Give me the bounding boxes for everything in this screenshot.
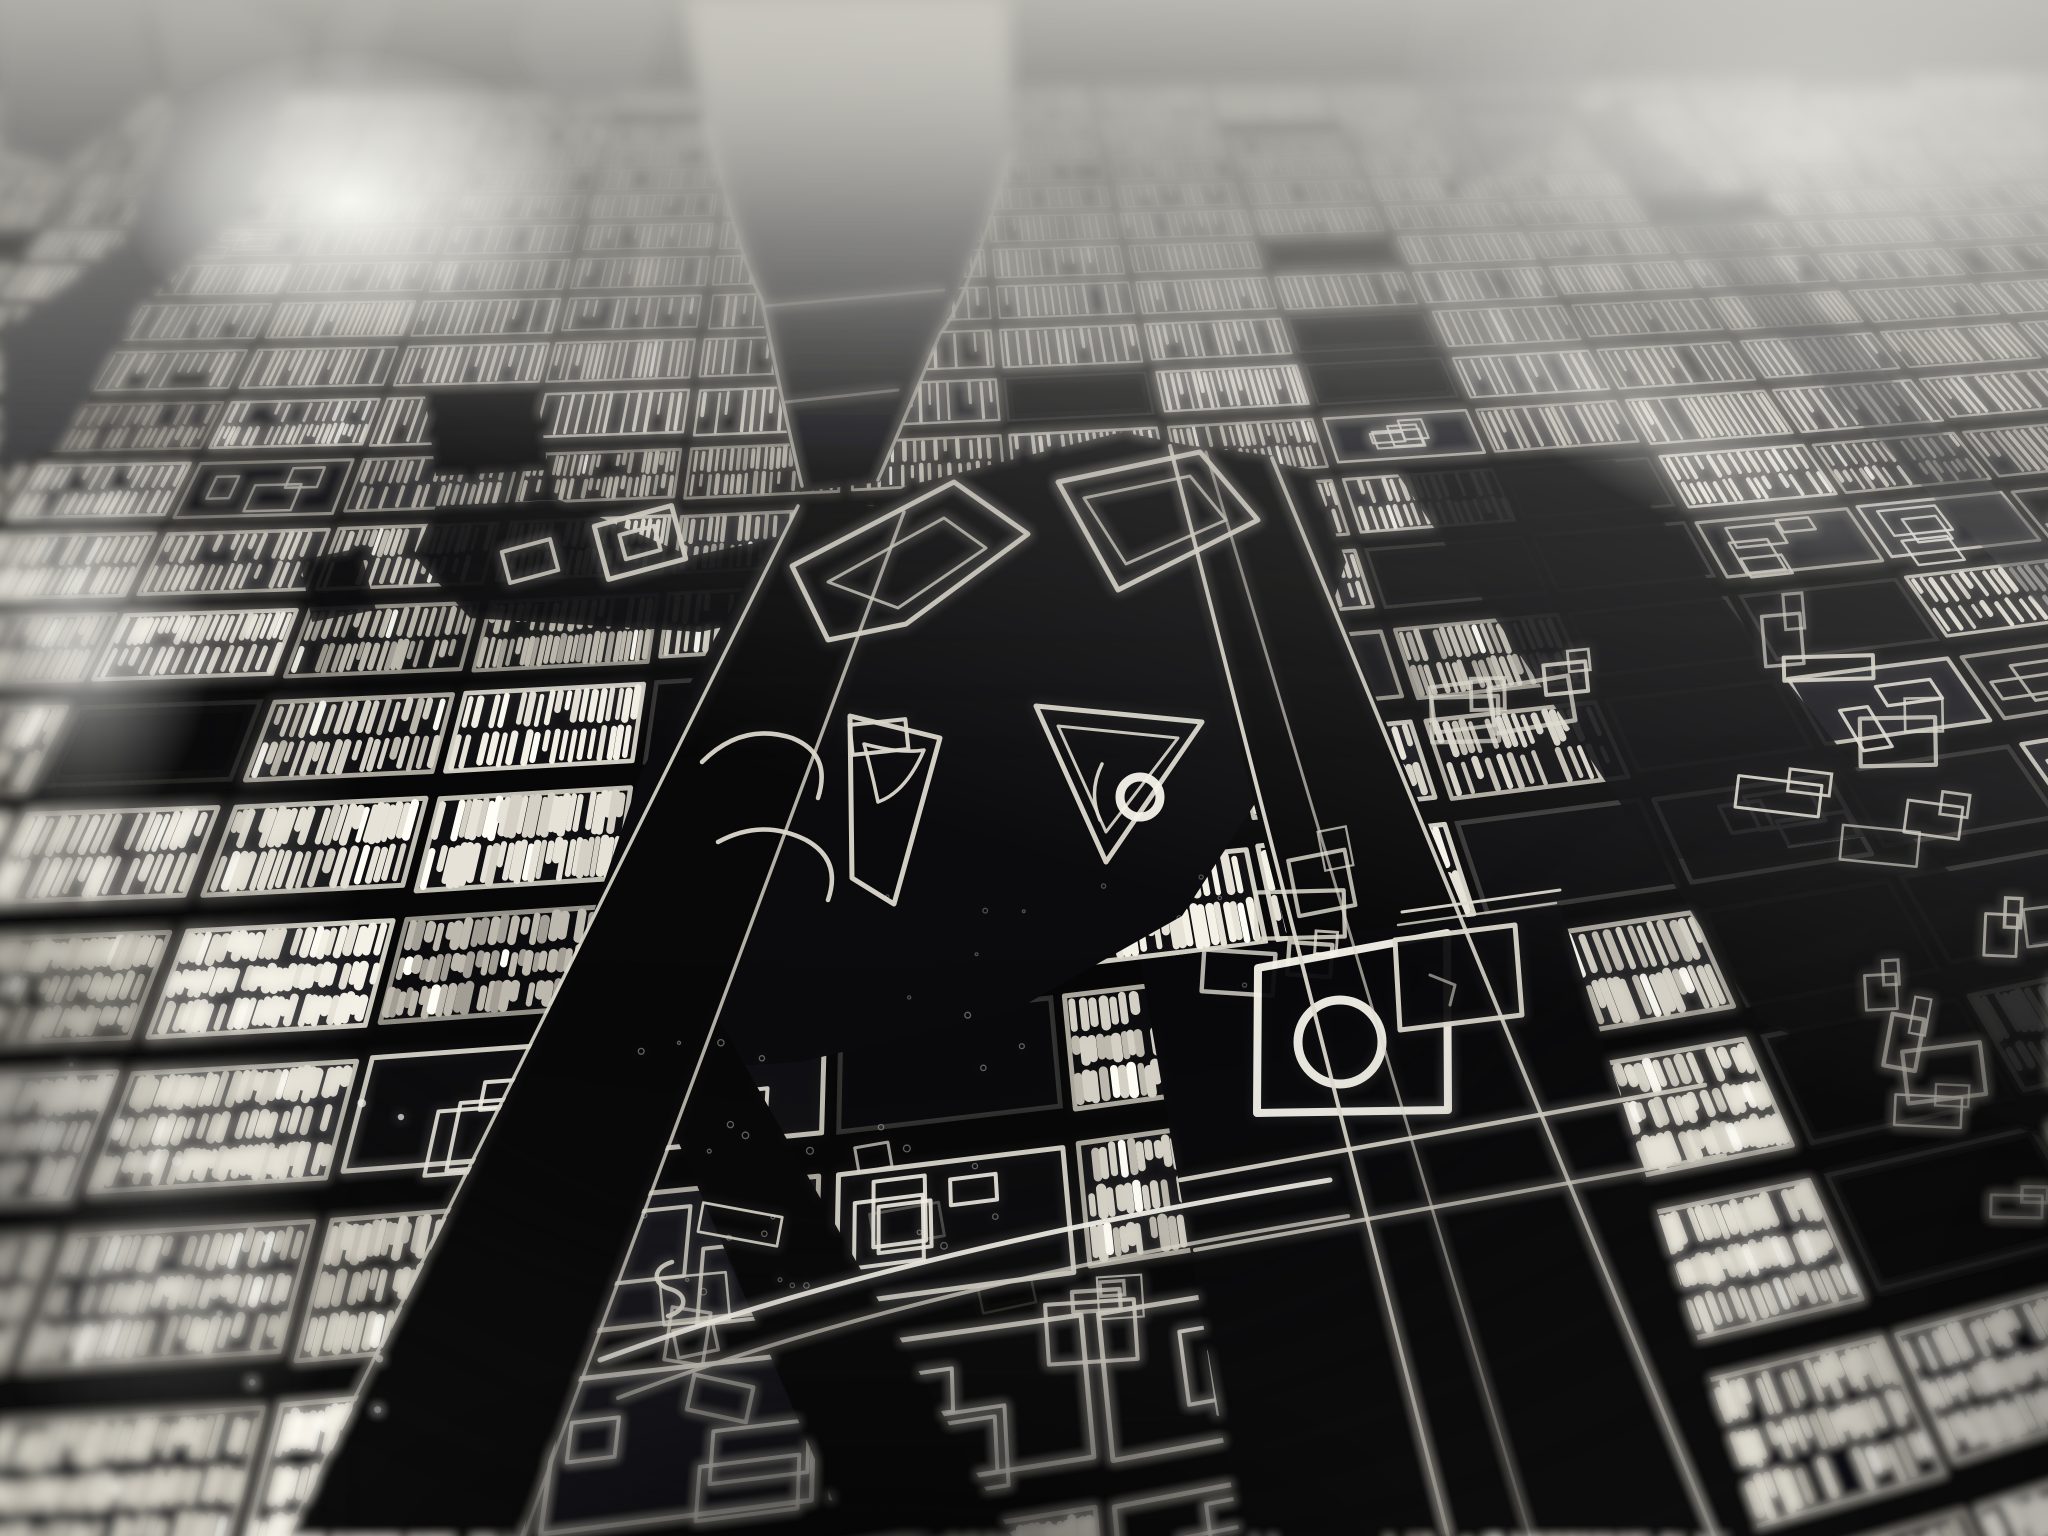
photo-macro-engraved-city-map bbox=[0, 0, 2048, 1536]
blur-layer-top-strong bbox=[0, 0, 2048, 1536]
engraved-map-scene bbox=[0, 0, 2048, 1536]
